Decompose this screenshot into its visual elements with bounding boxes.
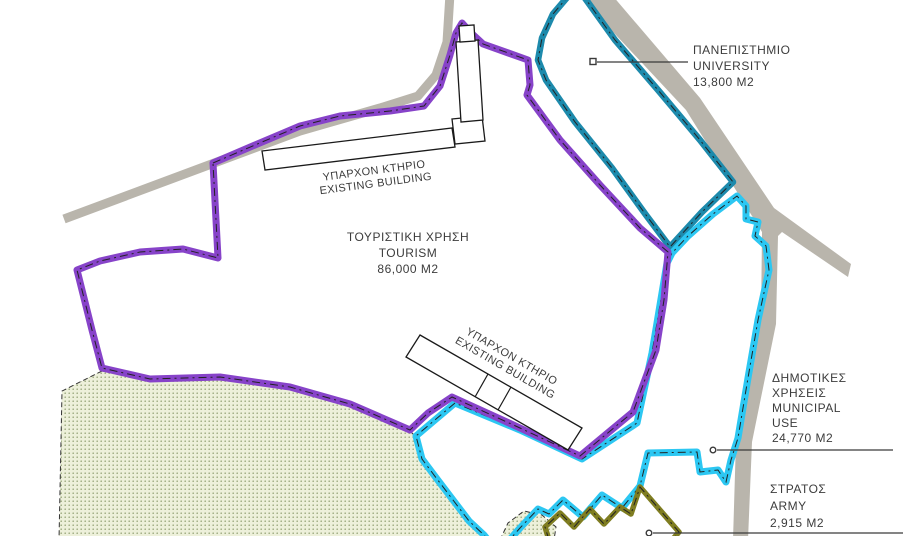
tourism-label-el: ΤΟΥΡΙΣΤΙΚΗ ΧΡΗΣΗ — [308, 229, 508, 245]
army-boundary — [545, 487, 679, 536]
tourism-label-en: TOURISM — [308, 245, 508, 261]
building-upper-top-block — [459, 25, 475, 42]
army-label-el: ΣΤΡΑΤΟΣ — [770, 481, 826, 498]
municipal-leader-marker — [710, 447, 716, 453]
army-label-en: ARMY — [770, 498, 826, 515]
municipal-label-el-2: ΧΡΗΣΕΙΣ — [772, 386, 847, 401]
university-label-en: UNIVERSITY — [693, 58, 790, 74]
army-label: ΣΤΡΑΤΟΣ ARMY 2,915 M2 — [770, 481, 826, 532]
site-plan-map: ΠΑΝΕΠΙΣΤΗΜΙΟ UNIVERSITY 13,800 M2 ΤΟΥΡΙΣ… — [0, 0, 907, 536]
municipal-label-el-1: ΔΗΜΟΤΙΚΕΣ — [772, 371, 847, 386]
army-label-area: 2,915 M2 — [770, 515, 826, 532]
university-leader-marker — [590, 59, 596, 65]
municipal-label-en-2: USE — [772, 416, 847, 431]
municipal-label-area: 24,770 M2 — [772, 431, 847, 446]
university-label-area: 13,800 M2 — [693, 74, 790, 90]
university-label: ΠΑΝΕΠΙΣΤΗΜΙΟ UNIVERSITY 13,800 M2 — [693, 42, 790, 90]
municipal-label-en-1: MUNICIPAL — [772, 401, 847, 416]
university-label-el: ΠΑΝΕΠΙΣΤΗΜΙΟ — [693, 42, 790, 58]
tourism-label-area: 86,000 M2 — [308, 261, 508, 277]
municipal-label: ΔΗΜΟΤΙΚΕΣ ΧΡΗΣΕΙΣ MUNICIPAL USE 24,770 M… — [772, 371, 847, 446]
tourism-label: ΤΟΥΡΙΣΤΙΚΗ ΧΡΗΣΗ TOURISM 86,000 M2 — [308, 229, 508, 277]
army-leader-marker — [646, 530, 652, 536]
building-upper-vertical — [456, 40, 483, 122]
